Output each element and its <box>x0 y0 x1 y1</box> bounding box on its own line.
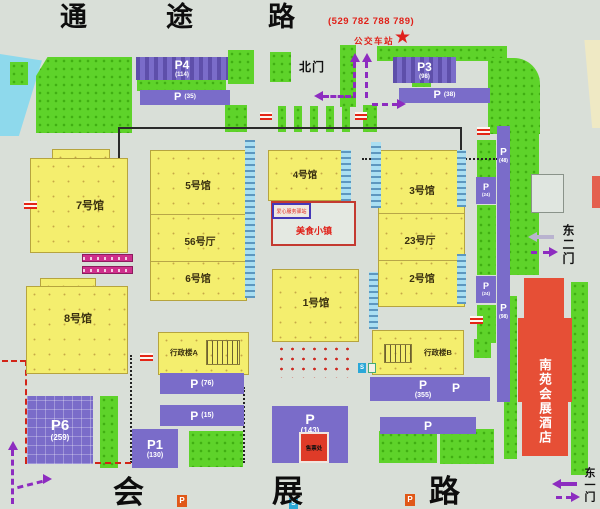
road-name-bottom-char: 展 <box>272 476 303 507</box>
parking-p3-count: (98) <box>419 74 430 80</box>
arrow-up-icon <box>350 53 360 62</box>
lawn <box>474 339 491 358</box>
lawn <box>440 429 494 464</box>
parking-p38-name: P <box>434 90 441 101</box>
parking-p35: P (35) <box>140 90 230 105</box>
parking-p98-count: (98) <box>499 315 508 320</box>
link-corridor <box>82 254 133 262</box>
parking-p6-name: P6 <box>51 418 69 433</box>
arrow-up-icon <box>362 53 372 62</box>
parking-p1-name: P1 <box>147 438 163 451</box>
arrow-bar <box>537 235 554 239</box>
route-dashed <box>556 496 572 499</box>
parking-p15-count: (15) <box>201 412 213 419</box>
food-town-label: 美食小镇 <box>286 224 342 237</box>
exhibition-center-map: 7号馆 8号馆 5号馆 56号厅 6号馆 4号馆 1号馆 3号馆 23号厅 2号… <box>0 0 600 509</box>
parking-p6-count: (259) <box>51 434 70 442</box>
parking-p24b: P (24) <box>476 276 496 303</box>
parking-p143-name: P <box>305 412 314 426</box>
hall-5-label: 5号馆 <box>168 182 228 193</box>
hall-23-label: 23号厅 <box>388 237 452 248</box>
hall-8 <box>26 286 128 374</box>
parking-p1-count: (130) <box>147 452 163 459</box>
hall-8-label: 8号馆 <box>48 314 108 326</box>
parking-p15: P (15) <box>160 405 244 426</box>
gate-marker <box>24 201 37 209</box>
ticket-office-label: 售票处 <box>306 444 323 452</box>
lawn <box>189 431 243 467</box>
admin-b-label: 行政楼B <box>416 349 460 357</box>
route-dashed <box>365 62 368 98</box>
route-dashed <box>17 480 43 489</box>
parking-p355b-name: P <box>452 382 460 394</box>
parking-p24b-name: P <box>483 282 489 291</box>
parking-p38: P (38) <box>399 88 490 103</box>
route-dashed <box>531 251 549 254</box>
gate-marker <box>355 112 367 120</box>
parking-p355-name: P <box>419 379 427 391</box>
parking-p3: P3 (98) <box>393 57 456 83</box>
road-name-top-char: 通 <box>60 4 87 31</box>
parking-p4-name: P4 <box>175 59 190 71</box>
arrow-right-icon <box>397 99 406 109</box>
lawn <box>228 50 254 84</box>
walkway-strip <box>341 150 351 201</box>
boundary-line <box>118 127 462 129</box>
parking-p4-count: (114) <box>175 72 189 78</box>
gate-marker <box>477 127 490 135</box>
admin-a-label: 行政楼A <box>162 349 206 357</box>
parking-p76: P (76) <box>160 373 244 394</box>
parking-p76-count: (76) <box>201 380 213 387</box>
hall-4-label: 4号馆 <box>278 171 332 181</box>
parking-p355-count: (355) <box>415 392 431 399</box>
parking-p24a: P (24) <box>476 177 496 204</box>
service-station-label: 爱心服务驿站 <box>276 208 306 215</box>
boundary-line <box>118 127 120 161</box>
route-dashed <box>372 103 398 106</box>
hall-7-label: 7号馆 <box>60 201 120 213</box>
route-dashed <box>11 450 14 504</box>
parking-p6: P6 (259) <box>27 396 93 464</box>
parking-p35-count: (35) <box>184 94 196 101</box>
service-station-box: 爱心服务驿站 <box>272 203 311 219</box>
road-name-top-char: 路 <box>268 4 295 31</box>
parking-p38-count: (38) <box>444 92 456 99</box>
parking-psouth-name: P <box>424 420 432 432</box>
hall-3-label: 3号馆 <box>392 187 452 198</box>
parking-p35-name: P <box>174 92 181 103</box>
bus-station-label: 公交车站 <box>354 35 394 47</box>
arrow-left-icon <box>314 91 323 101</box>
lawn <box>571 282 588 475</box>
parking-p76-name: P <box>190 378 198 390</box>
hall-2-label: 2号馆 <box>392 275 452 286</box>
parking-pin-icon: P <box>405 494 415 506</box>
parking-p143: P (143) 售票处 <box>272 406 348 463</box>
lawn <box>477 205 496 275</box>
walkway-strip <box>457 254 466 304</box>
route-dashed <box>323 95 351 98</box>
arrow-right-icon <box>43 474 52 484</box>
route-dashed <box>353 62 356 98</box>
parking-p98-name: P <box>500 304 507 314</box>
hall-divider <box>151 261 246 262</box>
parking-p48-count: (48) <box>499 159 508 164</box>
hotel-building <box>524 278 564 322</box>
gate-marker <box>470 316 483 324</box>
arrow-right-icon <box>549 247 558 257</box>
parking-p48-name: P <box>500 148 507 158</box>
parking-p1: P1 (130) <box>132 429 178 468</box>
arrow-bar <box>561 482 577 486</box>
arrow-left-icon <box>552 479 561 489</box>
arrow-left-icon <box>528 232 537 242</box>
road-name-top-char: 途 <box>166 4 193 31</box>
parking-p15-name: P <box>190 410 198 422</box>
north-gate-label: 北门 <box>299 58 325 75</box>
parking-p24a-name: P <box>483 183 489 192</box>
parking-pin-icon: P <box>177 495 187 507</box>
hotel-label: 南苑会展酒店 <box>536 358 554 450</box>
parking-p24b-count: (24) <box>482 292 490 297</box>
outlined-building <box>531 174 564 213</box>
lawn <box>379 431 437 463</box>
parking-psouth: P <box>380 417 476 434</box>
hall-divider <box>379 213 464 214</box>
route-red-dashed <box>2 360 26 362</box>
walkway-strip <box>369 272 378 329</box>
side-road <box>574 40 600 128</box>
gate-marker <box>260 112 272 120</box>
info-pin-icon <box>368 363 376 373</box>
gate-marker <box>140 353 153 361</box>
lawn <box>488 58 540 134</box>
lawn <box>10 62 28 85</box>
ticket-office-building: 售票处 <box>299 432 329 463</box>
colonnade-dots <box>276 344 350 378</box>
hall-divider <box>379 260 464 261</box>
walkway-strip <box>245 140 255 298</box>
hall-56-label: 56号厅 <box>168 238 232 249</box>
parking-p24a-count: (24) <box>482 193 490 198</box>
east-gate-1-label: 东一门 <box>581 467 597 509</box>
bus-station-star-icon: ★ <box>394 26 411 49</box>
stairs-icon <box>384 344 412 363</box>
parking-p355: P (355) P <box>370 377 490 401</box>
hall-1-label: 1号馆 <box>286 298 346 309</box>
parking-p4: P4 (114) <box>136 57 228 80</box>
link-corridor <box>82 266 133 274</box>
parking-p3-name: P3 <box>417 61 432 73</box>
lawn <box>100 396 118 468</box>
walkway-strip <box>457 150 466 207</box>
parking-strip-east: P (48) P (98) <box>497 126 510 402</box>
east-gate-2-label: 东二门 <box>561 224 577 270</box>
lawn <box>270 52 291 82</box>
arrow-right-icon <box>571 492 580 502</box>
walkway-strip <box>371 142 381 208</box>
hall-6-label: 6号馆 <box>168 275 228 286</box>
lawn <box>36 57 132 133</box>
lawn <box>477 305 496 343</box>
parking-p48-label: P (48) <box>497 148 510 164</box>
parking-p355-label: P (355) <box>398 379 448 399</box>
road-name-bottom-char: 会 <box>113 477 144 508</box>
stairs-icon <box>206 340 240 365</box>
parking-p98-label: P (98) <box>497 304 510 320</box>
station-pin-icon: S <box>358 363 366 373</box>
roadside-building <box>592 176 600 208</box>
road-name-bottom-char: 路 <box>429 476 460 507</box>
hall-divider <box>151 214 246 215</box>
arrow-up-icon <box>8 441 18 450</box>
